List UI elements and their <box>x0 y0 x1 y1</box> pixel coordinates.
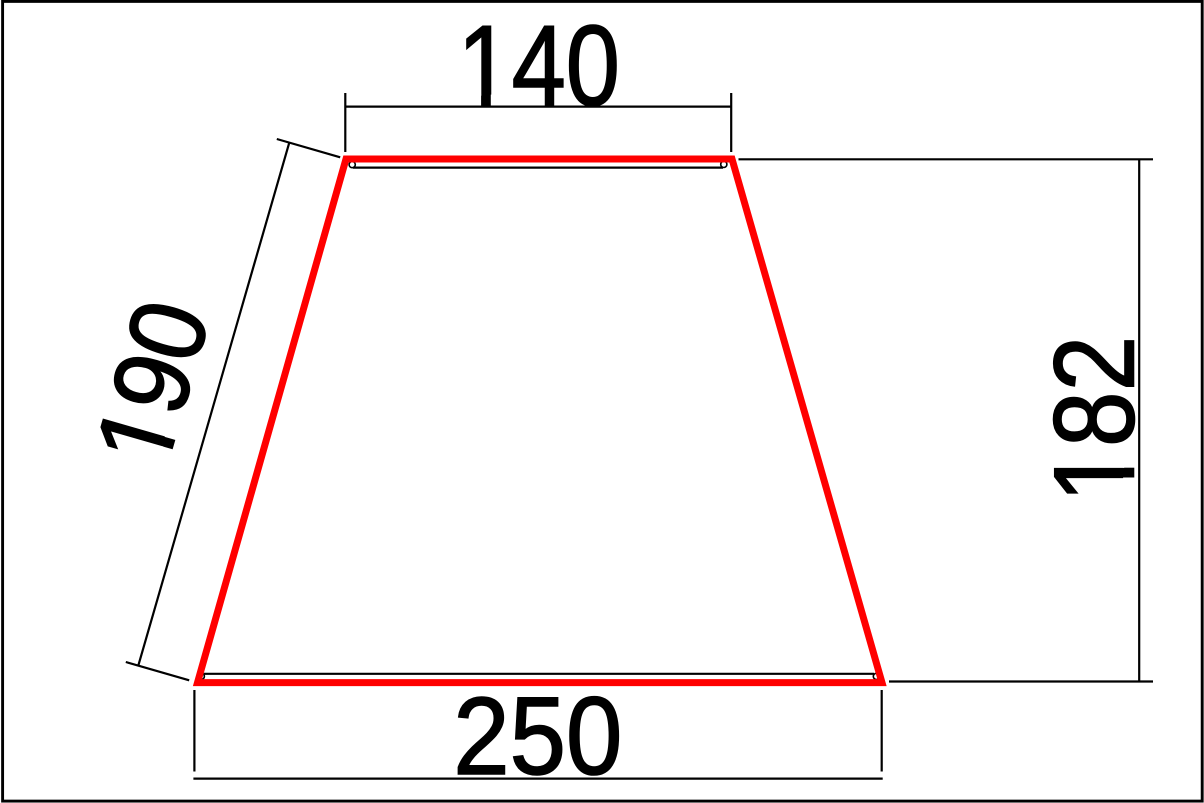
svg-text:250: 250 <box>453 675 622 798</box>
svg-text:140: 140 <box>457 3 620 130</box>
svg-text:182: 182 <box>1032 336 1159 503</box>
